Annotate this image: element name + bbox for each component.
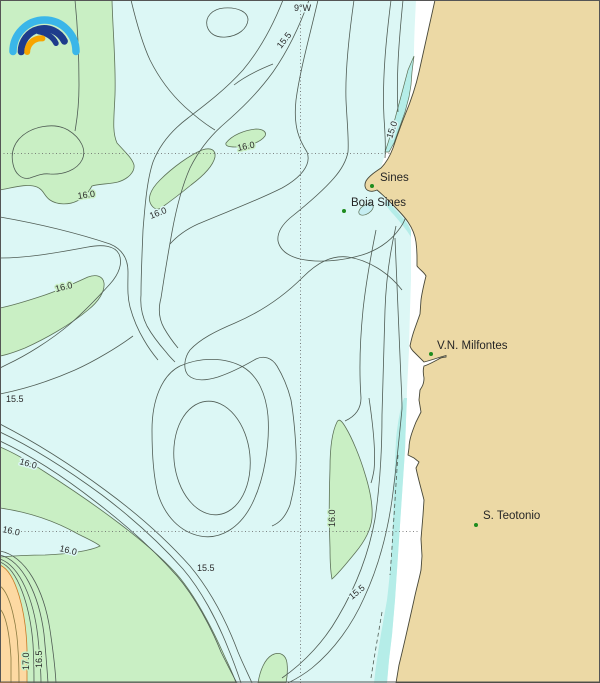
svg-text:15.5: 15.5 [6, 394, 24, 404]
svg-text:9°W: 9°W [294, 3, 312, 13]
svg-text:16.0: 16.0 [327, 509, 337, 527]
svg-text:16.5: 16.5 [34, 650, 44, 668]
svg-text:Boia Sines: Boia Sines [351, 197, 406, 209]
svg-text:15.5: 15.5 [197, 563, 215, 573]
svg-text:S. Teotonio: S. Teotonio [483, 510, 540, 522]
svg-text:17.0: 17.0 [21, 652, 31, 670]
svg-text:Sines: Sines [380, 172, 409, 184]
svg-text:V.N. Milfontes: V.N. Milfontes [437, 340, 508, 352]
